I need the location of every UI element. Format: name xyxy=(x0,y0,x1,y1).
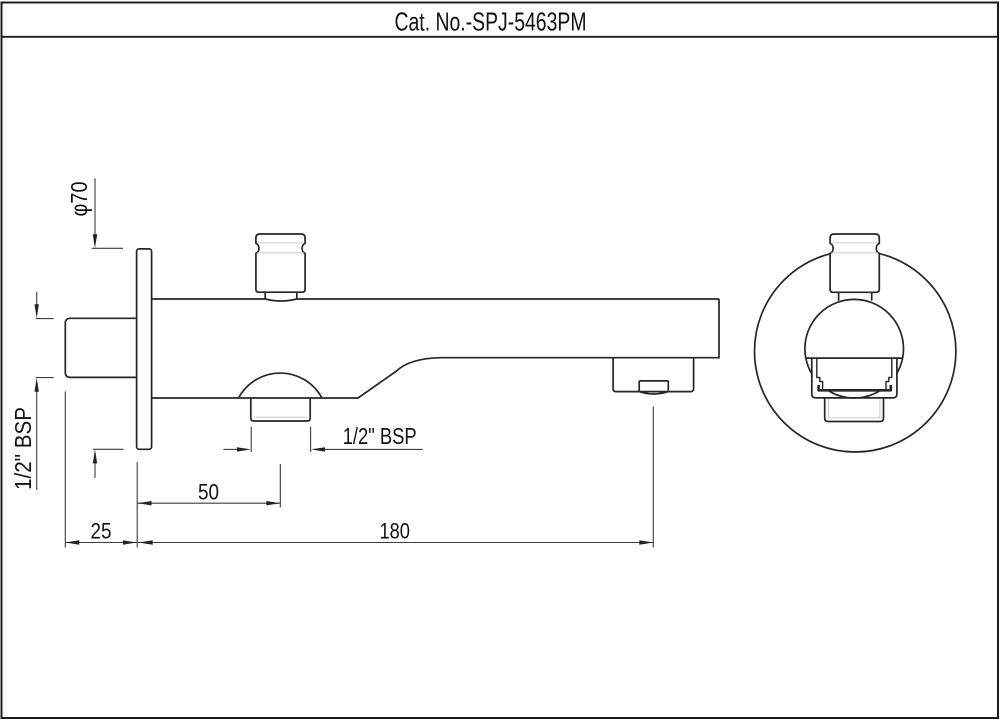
svg-text:φ70: φ70 xyxy=(66,182,92,217)
svg-text:Cat. No.-SPJ-5463PM: Cat. No.-SPJ-5463PM xyxy=(395,6,587,36)
svg-text:1/2" BSP: 1/2" BSP xyxy=(343,423,417,449)
svg-text:25: 25 xyxy=(91,519,112,544)
svg-text:180: 180 xyxy=(379,518,410,543)
svg-text:1/2" BSP: 1/2" BSP xyxy=(10,407,36,490)
svg-text:50: 50 xyxy=(198,480,219,505)
